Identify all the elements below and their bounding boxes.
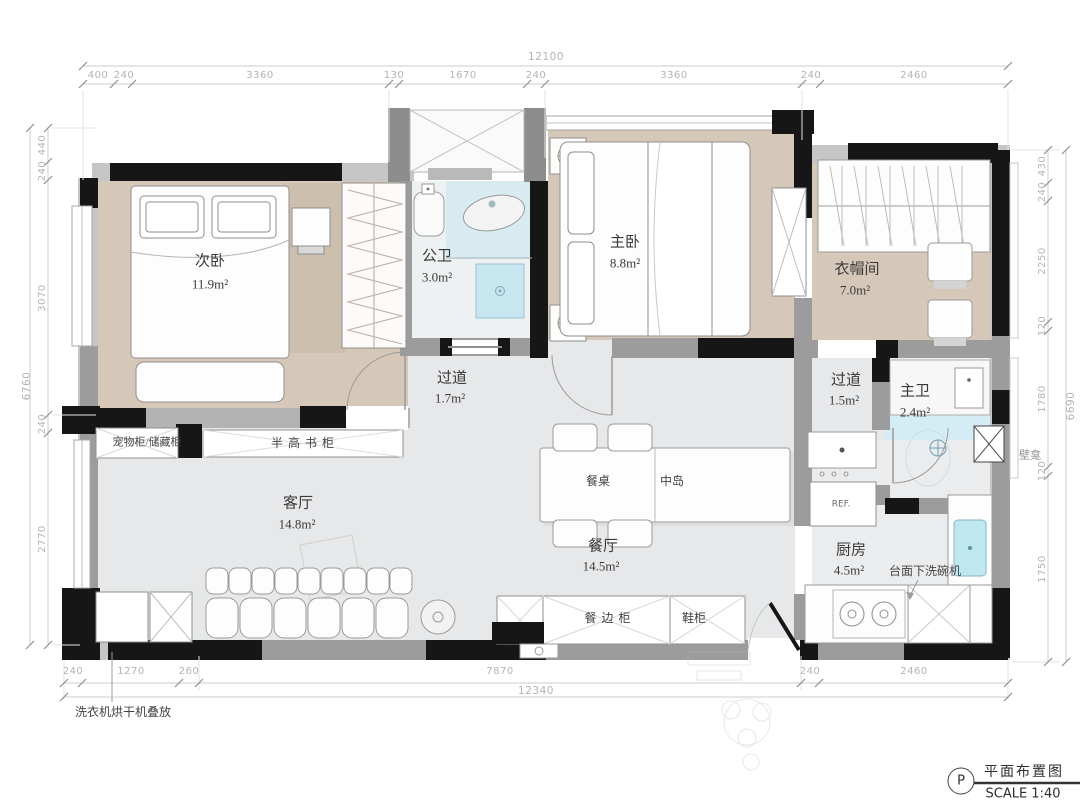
dim-right-overall: 6690 xyxy=(1066,392,1077,421)
dim-bottom-seg: 260 xyxy=(179,667,200,677)
sideboard-label: 餐边柜 xyxy=(584,612,635,624)
dim-right-seg: 1780 xyxy=(1038,385,1048,412)
dim-top-overall: 12100 xyxy=(528,52,564,63)
room-label-corridor-a: 过道 xyxy=(437,372,467,387)
title-block-code: P xyxy=(957,775,965,788)
room-label-kitchen: 厨房 xyxy=(836,544,866,559)
room-area-kitchen: 4.5m² xyxy=(834,564,864,577)
dim-left-seg: 240 xyxy=(38,414,48,435)
dim-right-seg: 430 xyxy=(1038,156,1048,177)
dim-top-seg: 3360 xyxy=(246,71,273,81)
dim-left-seg: 240 xyxy=(38,161,48,182)
room-area-corridor-b: 1.5m² xyxy=(829,394,859,407)
drawing-title: 平面布置图 xyxy=(984,766,1064,780)
room-area-dining-room: 14.5m² xyxy=(583,560,620,573)
dim-bottom-seg: 7870 xyxy=(486,667,513,677)
dim-bottom-seg: 240 xyxy=(63,667,84,677)
room-area-second-bedroom: 11.9m² xyxy=(192,278,228,291)
bookcase-label: 半高书柜 xyxy=(271,437,339,449)
dim-top-seg: 1670 xyxy=(449,71,476,81)
room-area-master-bedroom: 8.8m² xyxy=(610,257,640,270)
room-label-second-bedroom: 次卧 xyxy=(195,255,225,270)
laundry-note: 洗衣机烘干机叠放 xyxy=(75,706,171,718)
dim-bottom-seg: 2460 xyxy=(900,667,927,677)
room-label-corridor-b: 过道 xyxy=(831,374,861,389)
fridge-label: REF. xyxy=(832,501,851,510)
room-label-living-room: 客厅 xyxy=(283,497,313,512)
floor-plan-canvas: 次卧 11.9m² 公卫 3.0m² 主卧 8.8m² 衣帽间 7.0m² 过道… xyxy=(0,0,1080,806)
dim-right-seg: 1750 xyxy=(1038,555,1048,582)
dim-right-seg: 2250 xyxy=(1038,247,1048,274)
room-label-master-bedroom: 主卧 xyxy=(610,236,640,251)
room-label-dining-room: 餐厅 xyxy=(588,540,618,555)
room-label-cloakroom: 衣帽间 xyxy=(834,263,879,278)
dim-top-seg: 240 xyxy=(526,71,547,81)
dim-top-seg: 3360 xyxy=(660,71,687,81)
dim-bottom-overall: 12340 xyxy=(518,686,554,697)
island-label: 中岛 xyxy=(660,475,684,487)
dim-bottom-seg: 1270 xyxy=(117,667,144,677)
room-area-living-room: 14.8m² xyxy=(279,518,316,531)
dim-top-seg: 130 xyxy=(384,71,405,81)
pet-cabinet-label: 宠物柜/储藏柜 xyxy=(112,438,181,449)
drawing-scale: SCALE 1:40 xyxy=(985,788,1060,801)
dim-right-seg: 120 xyxy=(1038,316,1048,337)
room-label-guest-bath: 公卫 xyxy=(422,250,452,265)
dim-left-seg: 3070 xyxy=(38,284,48,311)
room-area-guest-bath: 3.0m² xyxy=(422,271,452,284)
entry-ghost-plants xyxy=(688,652,771,770)
dim-bottom-seg: 240 xyxy=(800,667,821,677)
dim-left-overall: 6760 xyxy=(22,372,33,401)
dim-right-seg: 120 xyxy=(1038,461,1048,482)
dishwasher-note: 台面下洗碗机 xyxy=(889,565,961,577)
dim-top-seg: 240 xyxy=(801,71,822,81)
room-area-corridor-a: 1.7m² xyxy=(435,392,465,405)
shoe-cabinet-label: 鞋柜 xyxy=(682,612,706,624)
dim-top-seg: 400 xyxy=(88,71,109,81)
dim-right-seg: 240 xyxy=(1038,182,1048,203)
room-area-master-bath: 2.4m² xyxy=(900,406,930,419)
dim-top-seg: 2460 xyxy=(900,71,927,81)
dim-left-seg: 440 xyxy=(38,135,48,156)
room-area-cloakroom: 7.0m² xyxy=(840,284,870,297)
dim-top-seg: 240 xyxy=(114,71,135,81)
dim-left-seg: 2770 xyxy=(38,525,48,552)
room-label-master-bath: 主卫 xyxy=(900,385,930,400)
dining-table-label: 餐桌 xyxy=(586,475,610,487)
